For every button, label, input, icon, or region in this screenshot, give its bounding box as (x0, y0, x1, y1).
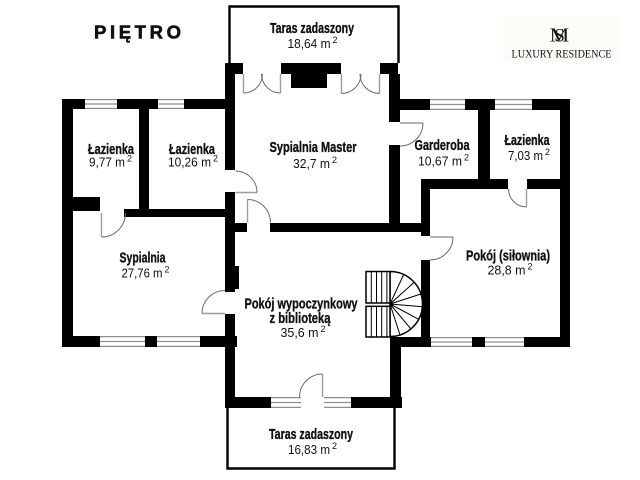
svg-text:Taras zadaszony: Taras zadaszony (269, 427, 353, 443)
svg-text:Sypialnia: Sypialnia (120, 251, 167, 267)
svg-text:Sypialnia Master: Sypialnia Master (270, 140, 357, 156)
svg-text:10,26 m2: 10,26 m2 (168, 154, 218, 170)
svg-text:Taras zadaszony: Taras zadaszony (270, 21, 354, 37)
svg-text:Garderoba: Garderoba (415, 138, 471, 154)
svg-text:Łazienka: Łazienka (505, 133, 551, 149)
svg-text:S: S (554, 26, 565, 47)
svg-text:LUXURY RESIDENCE: LUXURY RESIDENCE (512, 47, 612, 61)
svg-text:10,67 m2: 10,67 m2 (418, 153, 469, 169)
svg-text:16,83 m2: 16,83 m2 (288, 441, 337, 457)
svg-text:27,76 m2: 27,76 m2 (122, 265, 170, 281)
svg-text:18,64 m2: 18,64 m2 (288, 35, 338, 51)
